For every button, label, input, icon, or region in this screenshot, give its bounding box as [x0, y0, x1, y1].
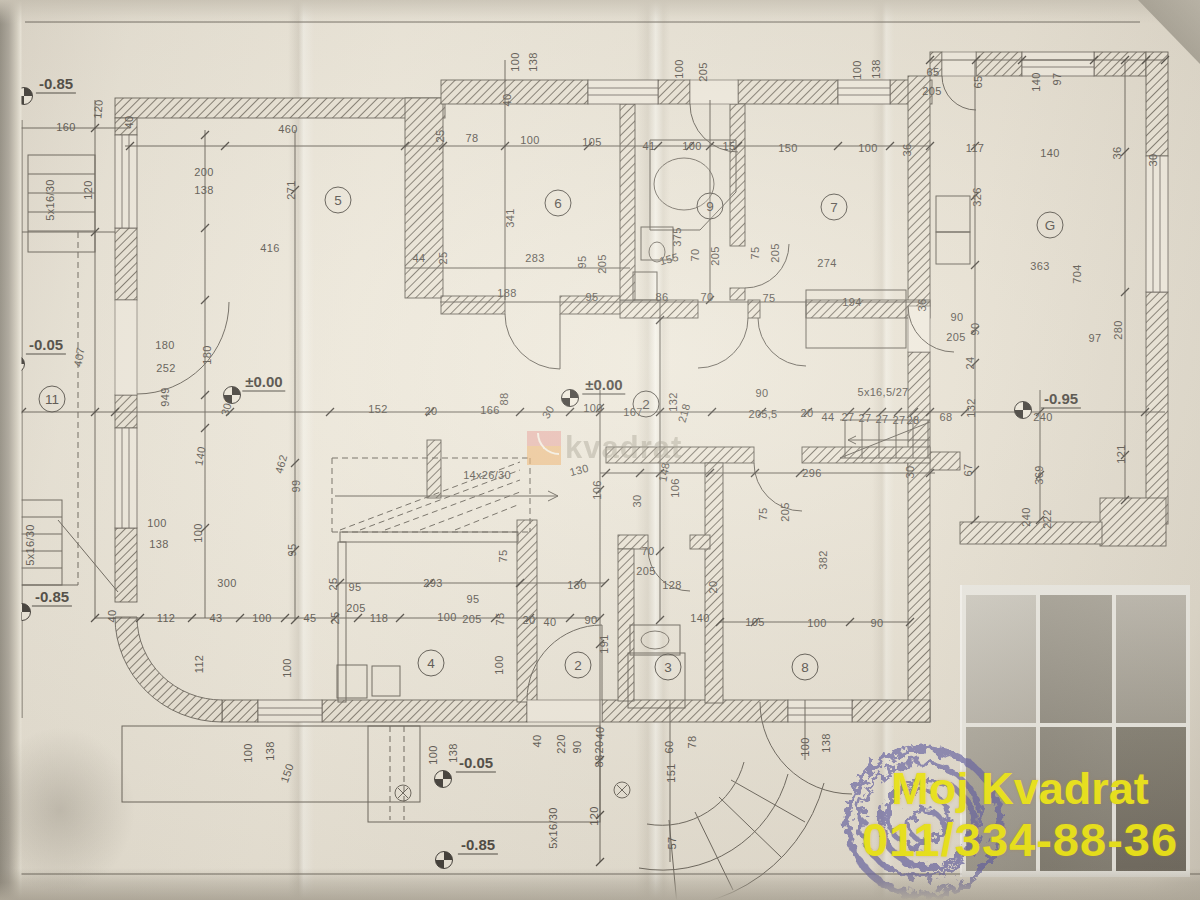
agency-name: Moj Kvadrat [840, 764, 1200, 814]
kvadrat-watermark: kvadrat [527, 430, 682, 466]
photo-collage-cell [1040, 595, 1112, 723]
photo-collage-cell [1116, 595, 1186, 723]
paper-edge-bottom [0, 868, 1200, 900]
branding-text: Moj Kvadrat 011/334-88-36 [840, 764, 1200, 867]
kvadrat-logo-icon [527, 431, 561, 465]
paper-edge-top [0, 0, 1200, 24]
photo-collage-cell [966, 595, 1036, 723]
paper-edge-left [0, 0, 22, 900]
kvadrat-watermark-text: kvadrat [565, 430, 682, 466]
scanned-floorplan-page: 10160120404602001382715x16/3012041644257… [0, 0, 1200, 900]
agency-phone: 011/334-88-36 [840, 814, 1200, 867]
